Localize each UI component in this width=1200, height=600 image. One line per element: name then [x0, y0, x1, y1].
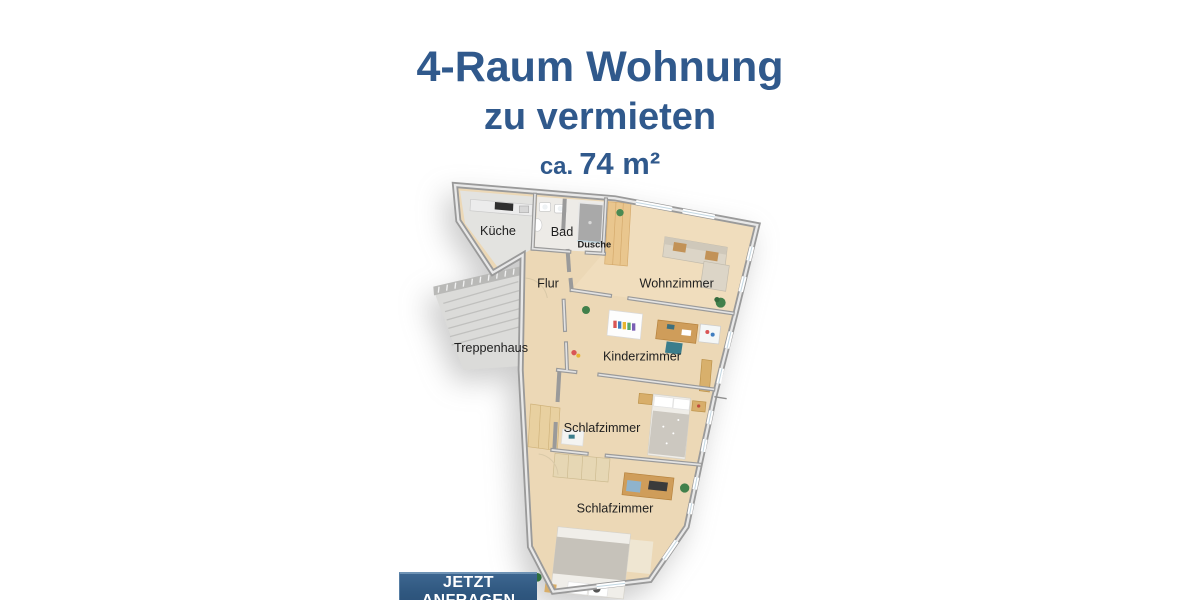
headline-block: 4-Raum Wohnung zu vermieten ca.74 m²: [0, 46, 1200, 179]
headline-subtitle: zu vermieten: [0, 98, 1200, 136]
room-label-schlafzimmer-2: Schlafzimmer: [577, 502, 654, 516]
flyer: 4-Raum Wohnung zu vermieten ca.74 m²: [0, 0, 1200, 600]
room-label-flur: Flur: [537, 276, 559, 290]
room-label-kinderzimmer: Kinderzimmer: [603, 350, 681, 364]
headline-title: 4-Raum Wohnung: [0, 46, 1200, 89]
room-label-wohnzimmer: Wohnzimmer: [640, 276, 714, 290]
room-label-schlafzimmer-1: Schlafzimmer: [564, 421, 641, 435]
hall-wardrobe: [605, 202, 631, 266]
room-label-bad: Bad: [551, 225, 574, 239]
floorplan-3d: Küche Bad Dusche Flur Wohnzimmer Treppen…: [420, 170, 780, 600]
room-label-treppenhaus: Treppenhaus: [454, 341, 528, 355]
room-label-dusche: Dusche: [577, 239, 611, 249]
jetzt-anfragen-button[interactable]: JETZT ANFRAGEN: [399, 572, 537, 600]
room-label-kueche: Küche: [480, 224, 516, 238]
